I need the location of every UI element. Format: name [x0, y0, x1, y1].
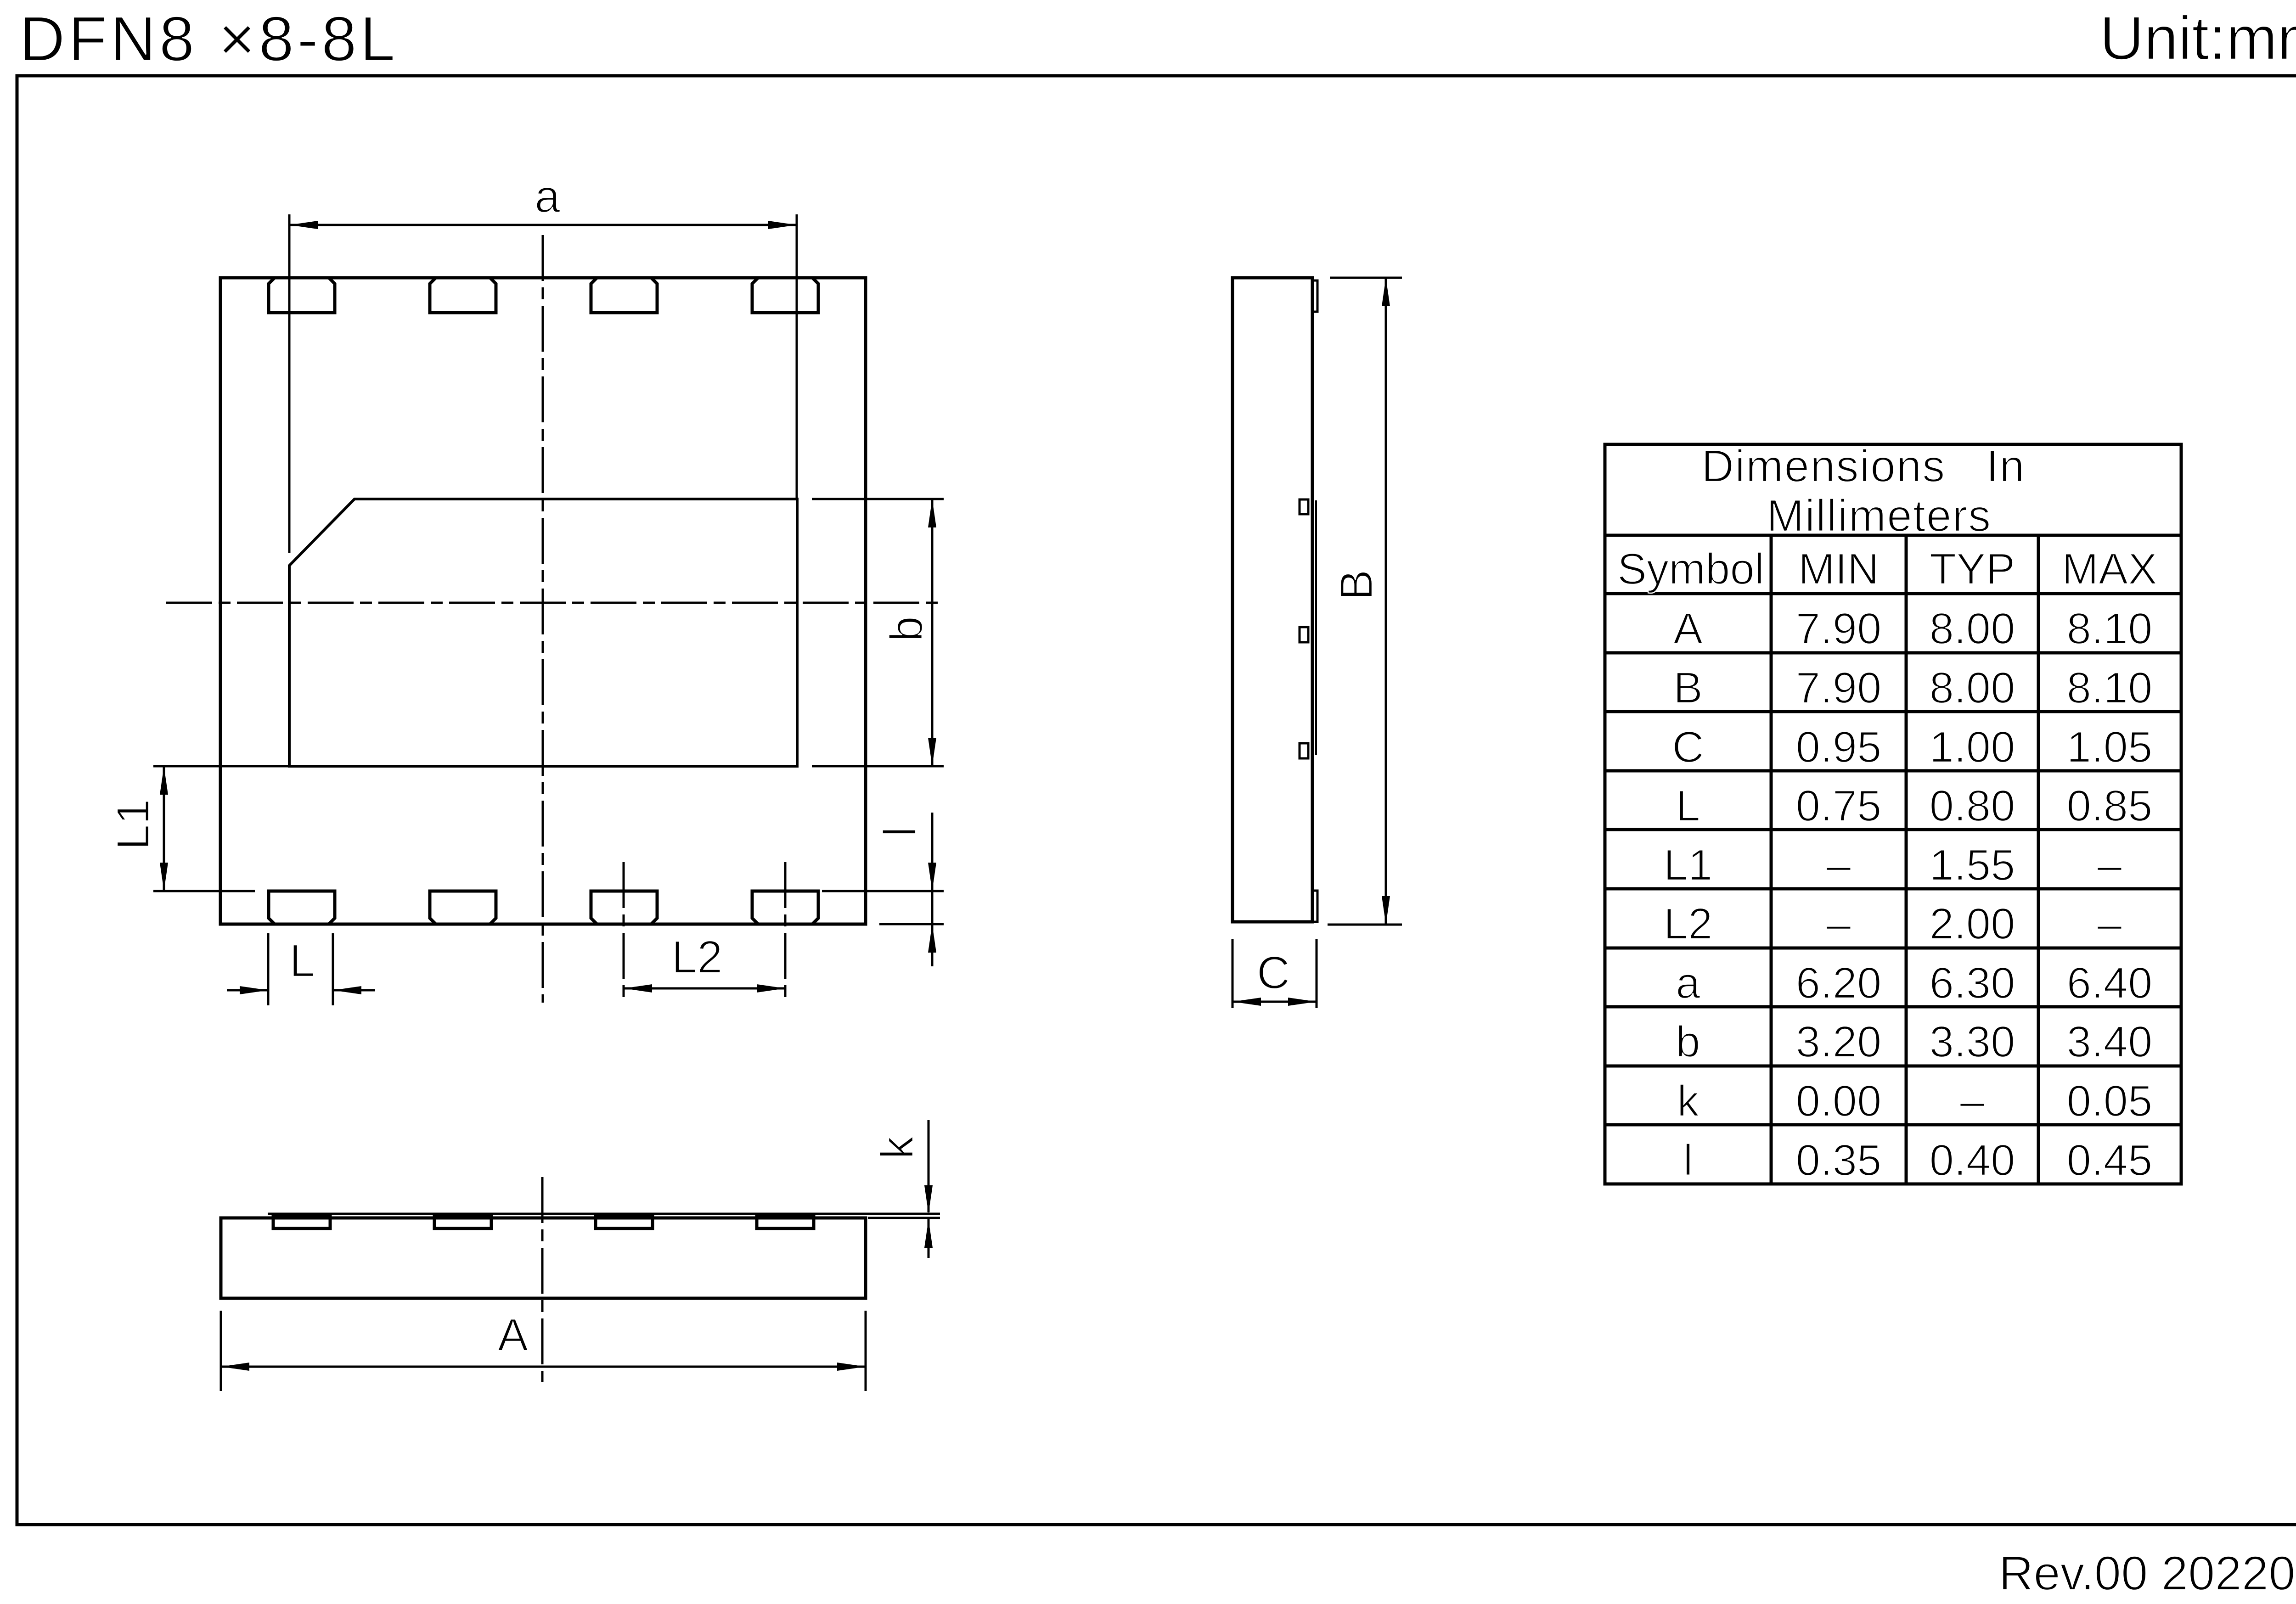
svg-text:–: – [1960, 1077, 1985, 1126]
svg-text:6.40: 6.40 [2067, 959, 2153, 1008]
svg-text:0.00: 0.00 [1796, 1077, 1882, 1126]
svg-text:Millimeters: Millimeters [1767, 490, 1992, 541]
svg-text:l: l [1683, 1136, 1693, 1185]
svg-text:7.90: 7.90 [1796, 604, 1882, 653]
svg-text:3.20: 3.20 [1796, 1017, 1882, 1066]
svg-text:0.35: 0.35 [1796, 1136, 1882, 1185]
svg-text:A: A [1673, 604, 1703, 653]
svg-text:MAX: MAX [2062, 544, 2157, 594]
svg-text:B: B [1331, 570, 1382, 600]
svg-text:1.00: 1.00 [1930, 723, 2015, 772]
svg-text:L1: L1 [1664, 841, 1713, 890]
svg-text:2.00: 2.00 [1930, 899, 2015, 948]
svg-text:b: b [1676, 1017, 1700, 1066]
svg-text:3.30: 3.30 [1930, 1017, 2015, 1066]
svg-text:8.00: 8.00 [1930, 663, 2015, 712]
svg-text:L: L [1676, 781, 1700, 830]
svg-text:MIN: MIN [1798, 544, 1879, 594]
svg-text:Dimensions In: Dimensions In [1701, 441, 2025, 491]
svg-text:b: b [881, 616, 932, 642]
svg-text:C: C [1257, 947, 1290, 998]
svg-text:–: – [1826, 841, 1851, 890]
svg-text:DFN8 ×8-8L: DFN8 ×8-8L [19, 4, 399, 74]
svg-text:0.45: 0.45 [2067, 1136, 2153, 1185]
svg-text:L2: L2 [1664, 899, 1713, 948]
svg-text:A: A [498, 1309, 529, 1361]
svg-text:0.85: 0.85 [2067, 781, 2153, 830]
svg-text:–: – [1826, 899, 1851, 948]
svg-text:Unit:mm: Unit:mm [2099, 4, 2296, 73]
svg-text:6.20: 6.20 [1796, 959, 1882, 1008]
svg-text:0.75: 0.75 [1796, 781, 1882, 830]
svg-text:6.30: 6.30 [1930, 959, 2015, 1008]
svg-text:TYP: TYP [1930, 544, 2015, 594]
svg-text:–: – [2097, 841, 2122, 890]
svg-text:0.40: 0.40 [1930, 1136, 2015, 1185]
svg-text:L: L [289, 935, 315, 987]
svg-text:0.80: 0.80 [1930, 781, 2015, 830]
svg-text:8.10: 8.10 [2067, 663, 2153, 712]
svg-text:Rev.00 202207: Rev.00 202207 [1999, 1547, 2296, 1600]
svg-text:8.00: 8.00 [1930, 604, 2015, 653]
svg-text:C: C [1672, 723, 1704, 772]
svg-text:L2: L2 [671, 931, 722, 983]
svg-text:1.05: 1.05 [2067, 723, 2153, 772]
svg-text:8.10: 8.10 [2067, 604, 2153, 653]
svg-text:0.95: 0.95 [1796, 723, 1882, 772]
svg-text:l: l [874, 827, 926, 837]
svg-text:k: k [1677, 1077, 1699, 1126]
svg-text:a: a [1676, 959, 1700, 1008]
svg-text:–: – [2097, 899, 2122, 948]
svg-text:1.55: 1.55 [1930, 841, 2015, 890]
svg-text:L1: L1 [107, 799, 159, 850]
svg-text:7.90: 7.90 [1796, 663, 1882, 712]
svg-text:3.40: 3.40 [2067, 1017, 2153, 1066]
svg-text:a: a [535, 171, 560, 222]
svg-text:B: B [1673, 663, 1703, 712]
svg-text:Symbol: Symbol [1617, 544, 1764, 594]
svg-text:k: k [872, 1136, 923, 1159]
svg-text:0.05: 0.05 [2067, 1077, 2153, 1126]
